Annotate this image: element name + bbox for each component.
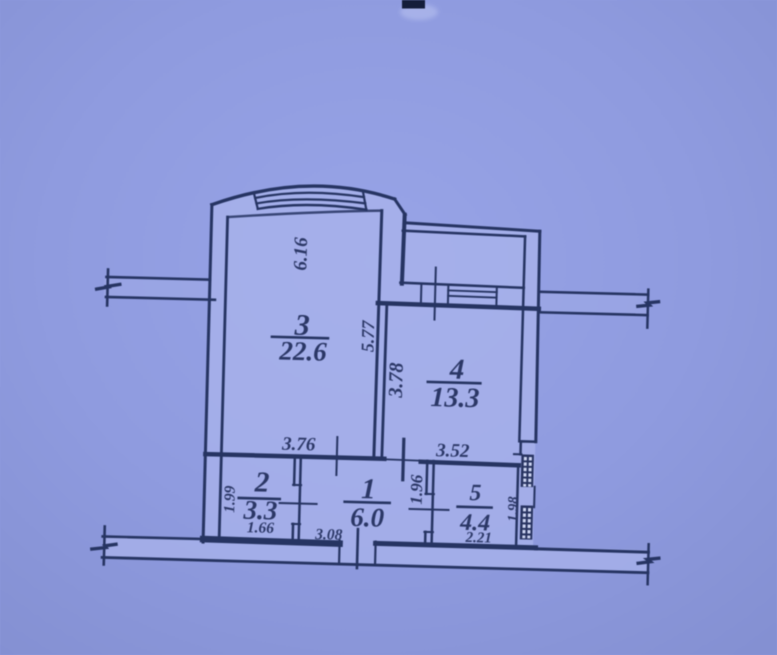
svg-text:2: 2	[253, 466, 269, 498]
svg-text:2.21: 2.21	[464, 530, 492, 547]
svg-text:6.0: 6.0	[350, 502, 385, 533]
svg-text:6.16: 6.16	[290, 237, 312, 271]
svg-text:5.77: 5.77	[357, 319, 378, 352]
svg-text:22.6: 22.6	[278, 335, 328, 366]
svg-text:1.96: 1.96	[407, 474, 427, 505]
svg-text:1.98: 1.98	[505, 496, 522, 523]
svg-text:1.66: 1.66	[247, 519, 275, 537]
svg-text:4: 4	[449, 353, 465, 385]
svg-text:1: 1	[361, 473, 376, 505]
svg-text:3.78: 3.78	[385, 362, 408, 399]
svg-text:5: 5	[469, 480, 482, 506]
svg-text:3.08: 3.08	[314, 526, 343, 544]
svg-text:13.3: 13.3	[430, 382, 480, 414]
svg-text:3.52: 3.52	[435, 440, 470, 462]
svg-text:3.76: 3.76	[281, 434, 316, 456]
svg-text:1.99: 1.99	[221, 485, 239, 513]
